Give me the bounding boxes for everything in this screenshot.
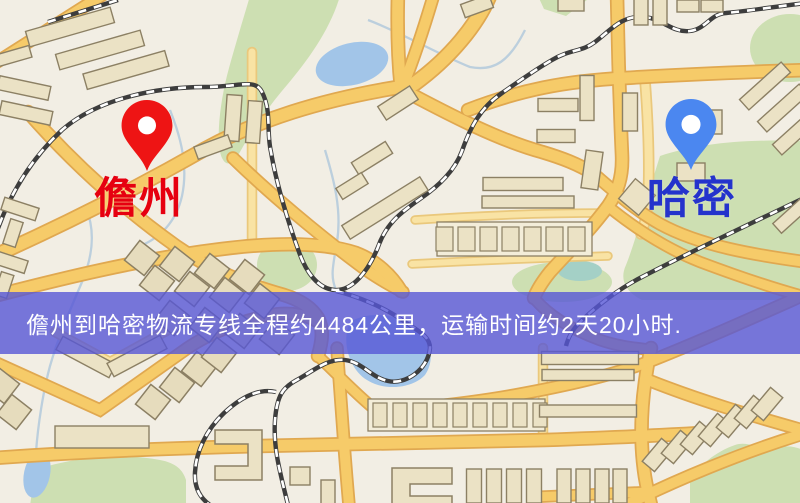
building [513,403,527,427]
building [568,227,585,251]
building [487,469,502,503]
building [246,101,263,144]
building [453,403,467,427]
destination-label: 哈密 [647,178,737,221]
road [534,492,648,497]
building [595,469,609,503]
building [524,227,541,251]
building [467,469,482,503]
map-base-layers [0,0,800,503]
building [290,467,310,485]
building [473,403,487,427]
building [493,403,507,427]
building [634,0,648,25]
building [540,405,637,417]
building [537,130,575,143]
building [433,403,447,427]
building [527,469,542,503]
origin-pin-hole [138,116,156,134]
building [538,99,578,112]
route-banner: 儋州到哈密物流专线全程约4484公里，运输时间约2天20小时. [0,292,800,354]
building [482,196,574,208]
building [623,93,638,131]
building [580,76,594,121]
building [393,403,407,427]
building [546,227,563,251]
building [483,178,563,191]
building [701,0,723,12]
building [653,0,667,25]
map-canvas [0,0,800,503]
building [558,0,584,11]
building [321,480,335,503]
building [542,370,634,381]
route-banner-text: 儋州到哈密物流专线全程约4484公里，运输时间约2天20小时. [26,306,682,340]
building [373,403,387,427]
origin-label: 儋州 [94,178,184,221]
building [502,227,519,251]
building [557,469,571,503]
building [480,227,497,251]
building [413,403,427,427]
building [458,227,475,251]
building [677,0,699,12]
destination-pin-hole [681,115,700,134]
building [55,426,149,448]
building [613,469,627,503]
map-screenshot: 儋州 哈密 儋州到哈密物流专线全程约4484公里，运输时间约2天20小时. [0,0,800,503]
building [436,227,453,251]
road [398,0,401,88]
building [576,469,590,503]
building [507,469,522,503]
